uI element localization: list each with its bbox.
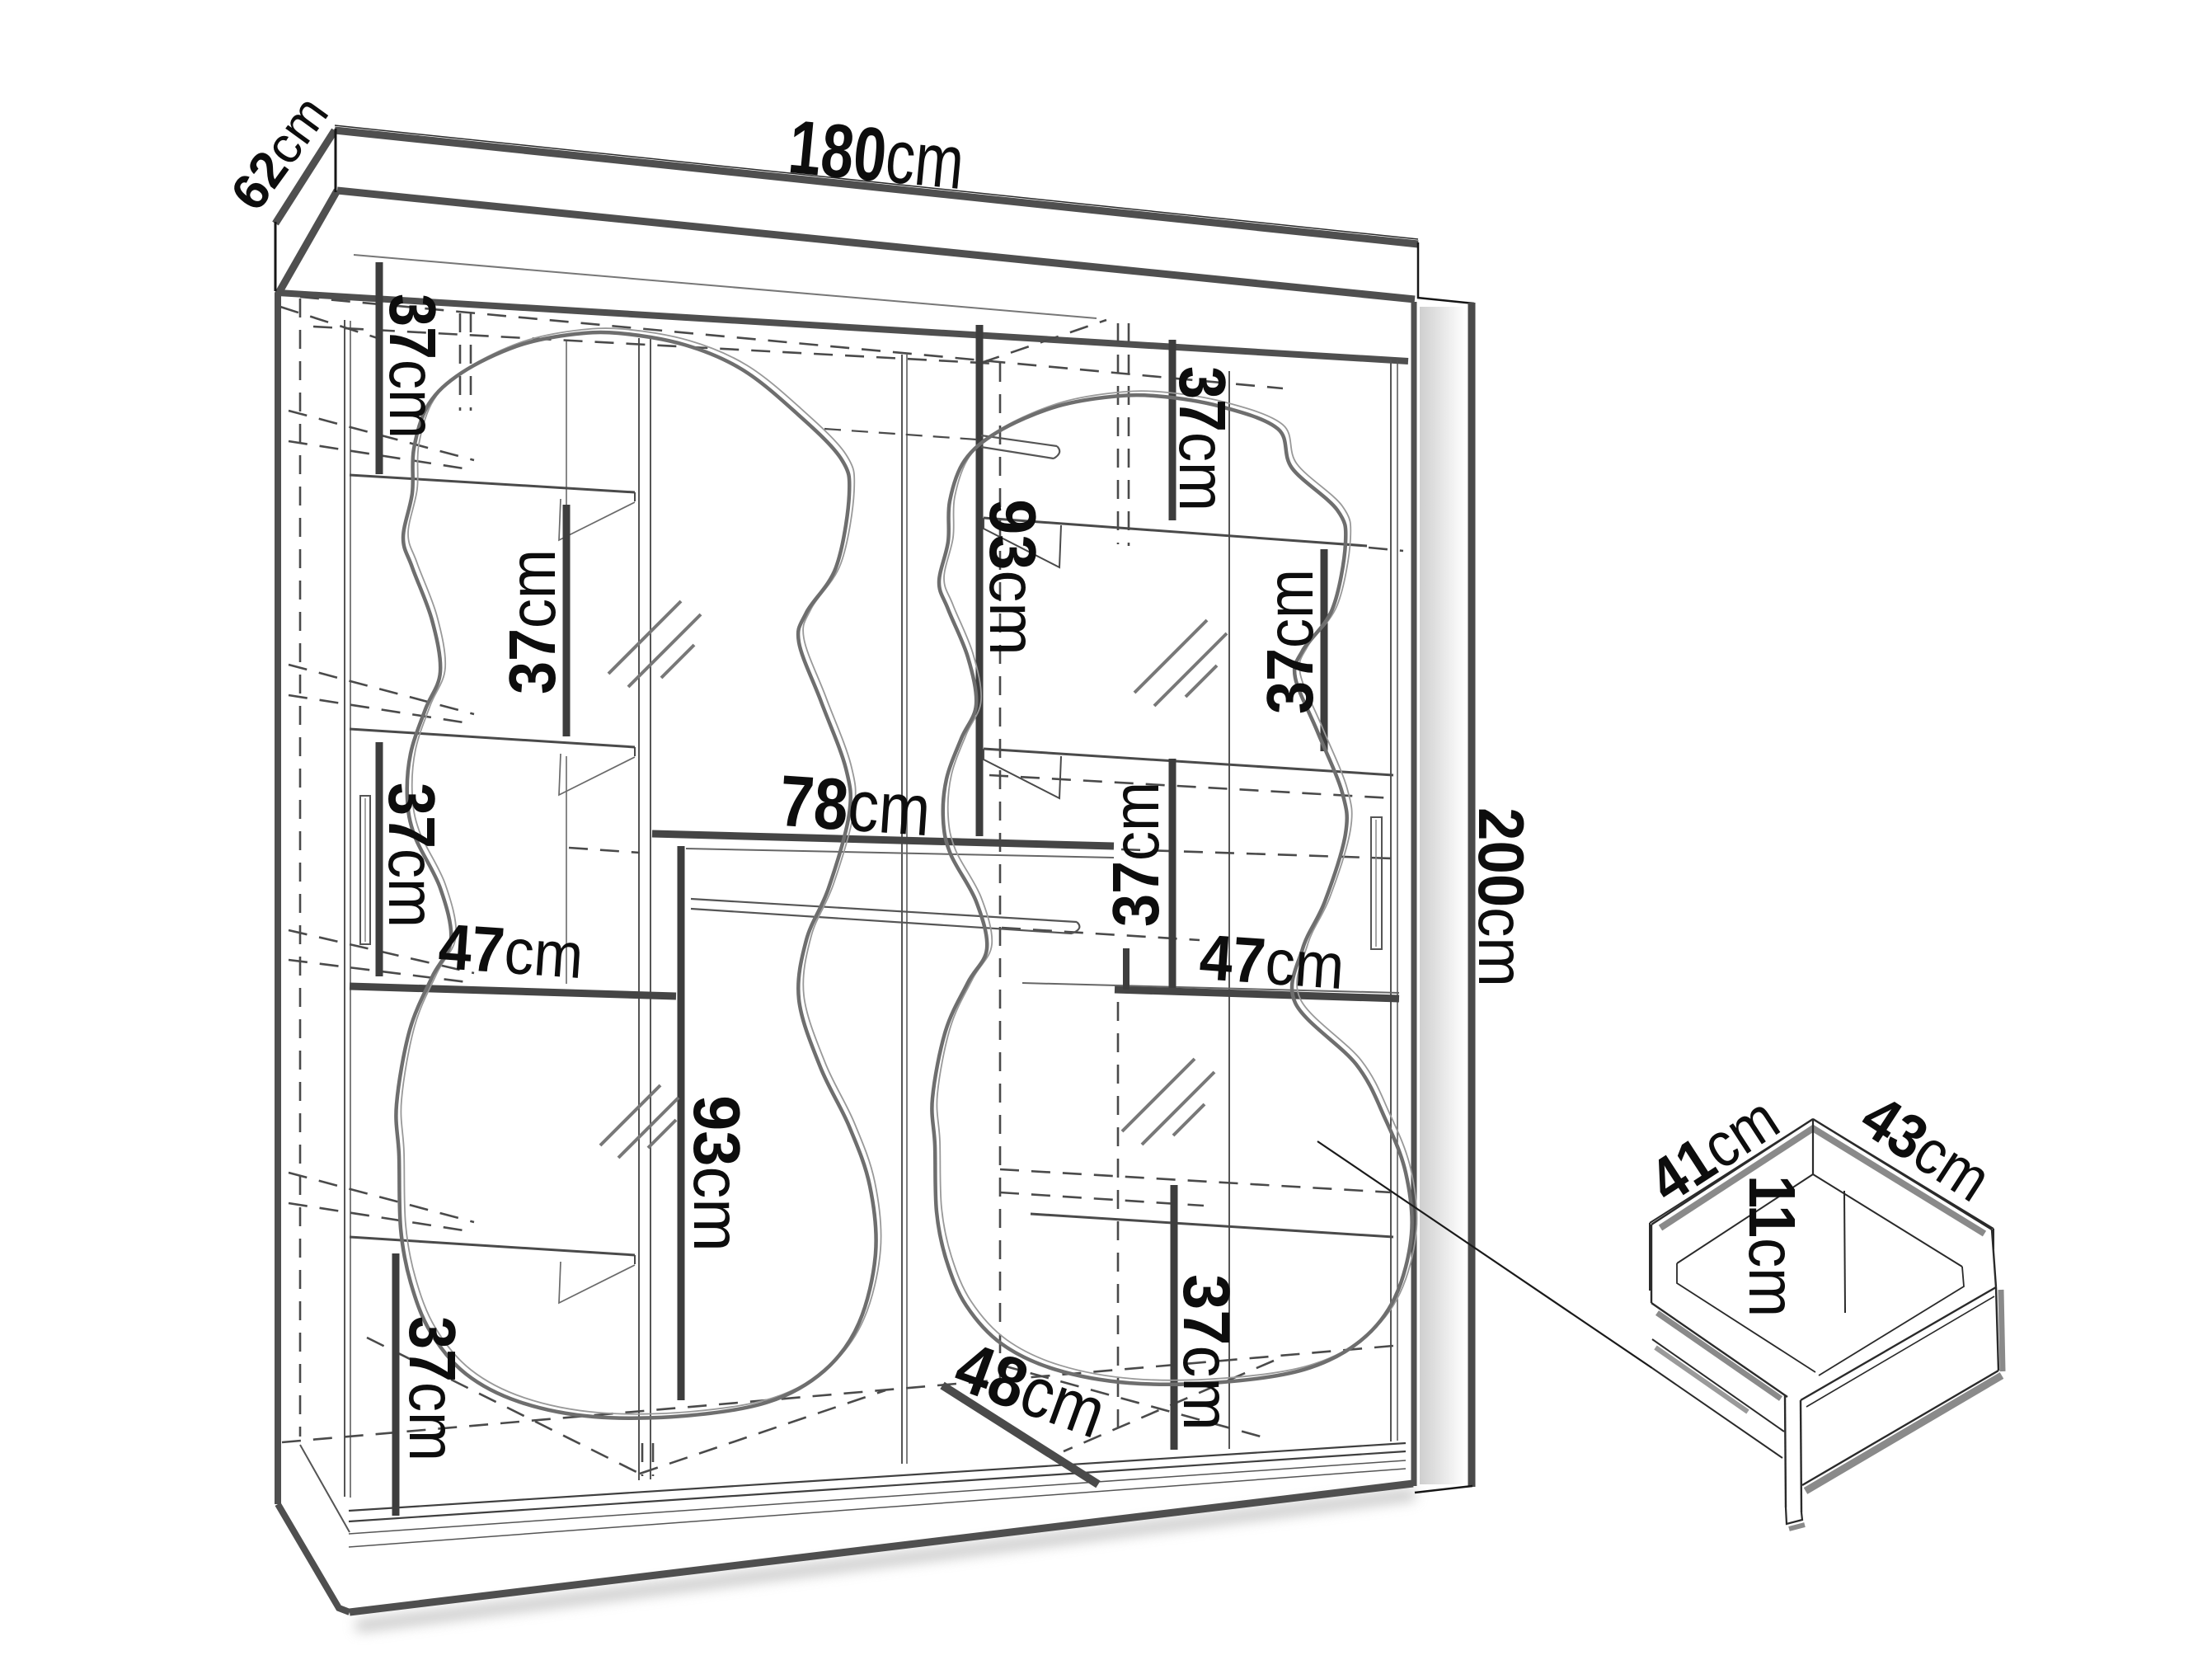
svg-text:37cm: 37cm — [1165, 366, 1238, 511]
svg-text:37cm: 37cm — [1100, 782, 1173, 927]
svg-text:37cm: 37cm — [1254, 569, 1327, 714]
svg-text:47cm: 47cm — [1197, 920, 1346, 1002]
svg-text:37cm: 37cm — [496, 549, 570, 694]
svg-text:200cm: 200cm — [1465, 807, 1537, 987]
svg-text:78cm: 78cm — [777, 760, 932, 852]
svg-text:37cm: 37cm — [1170, 1274, 1243, 1431]
svg-text:37cm: 37cm — [395, 1316, 468, 1461]
svg-text:47cm: 47cm — [436, 910, 585, 991]
svg-text:37cm: 37cm — [374, 783, 448, 928]
svg-text:93cm: 93cm — [680, 1095, 754, 1252]
svg-text:11cm: 11cm — [1735, 1175, 1808, 1317]
svg-text:93cm: 93cm — [976, 499, 1050, 656]
svg-text:180cm: 180cm — [785, 105, 967, 205]
svg-text:37cm: 37cm — [375, 294, 449, 439]
